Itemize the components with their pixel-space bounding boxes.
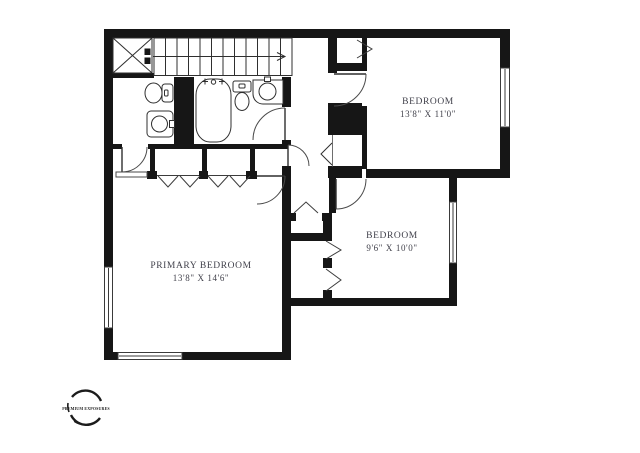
window-primary-south — [118, 353, 182, 360]
bedroom2-name: BEDROOM — [366, 231, 418, 241]
wall-linen-top-left — [288, 213, 296, 221]
room-label-primary-bedroom: PRIMARY BEDROOM 13'8" X 14'6" — [150, 261, 251, 283]
bedroom2-closet-chevron-2 — [326, 269, 341, 291]
wall-col-left-upper — [328, 38, 337, 73]
wall-post-1 — [147, 171, 157, 179]
window-bedroom2-east — [450, 202, 457, 263]
toilet-fixture — [145, 83, 173, 103]
door-water-closet — [122, 147, 147, 172]
door-bedroom1 — [334, 74, 366, 106]
door-bathroom — [253, 108, 285, 140]
floor-plan-drawing: BEDROOM 13'8" X 11'0" BEDROOM 9'6" X 10'… — [0, 0, 640, 453]
wall-top — [104, 29, 510, 38]
wall-bedroom1-bottom — [366, 169, 510, 178]
stairs-direction-arrow — [153, 53, 285, 61]
wall-bedroom2-bottom — [283, 298, 457, 306]
wall-col-right-b — [362, 106, 367, 169]
bifold-chevron-3 — [208, 176, 228, 187]
cased-opening-threshold — [116, 172, 147, 177]
primary-bedroom-name: PRIMARY BEDROOM — [150, 261, 251, 271]
bifold-chevron-2 — [180, 176, 200, 187]
wall-bath-south — [148, 144, 288, 149]
linen-closet-chevron — [294, 202, 318, 213]
window-primary-west — [105, 267, 113, 328]
wall-bath-south-west — [113, 144, 122, 149]
wall-closet-right-c — [323, 290, 332, 306]
door-hall-closet-flap — [321, 135, 333, 167]
door-bedroom2 — [336, 179, 366, 209]
room-label-bedroom2: BEDROOM 9'6" X 10'0" — [366, 231, 418, 253]
wall-closet-right-a — [323, 213, 332, 241]
bathtub-fixture — [196, 79, 231, 143]
bedroom2-dimensions: 9'6" X 10'0" — [366, 243, 417, 253]
wall-post-2 — [199, 171, 208, 179]
door-hall — [288, 145, 309, 166]
door-primary-bedroom — [257, 176, 285, 204]
toilet-fixture-2 — [233, 81, 251, 111]
x-box-closet — [113, 38, 152, 73]
vanity-sink-fixture — [253, 77, 283, 104]
wall-post-3 — [246, 171, 257, 179]
wall-bath-chase — [174, 77, 194, 144]
logo-brand-text: PREMIUM EXPOSURES — [62, 406, 110, 411]
wall-col-chase — [328, 103, 362, 135]
watermark-logo: PREMIUM EXPOSURES — [62, 391, 110, 425]
wall-xbox-bottom — [104, 73, 154, 78]
wall-br1-closet-bottom — [337, 63, 363, 71]
wall-bedroom2-west — [329, 178, 336, 213]
bedroom1-name: BEDROOM — [402, 97, 454, 107]
primary-bedroom-dimensions: 13'8" X 14'6" — [173, 273, 229, 283]
window-bedroom1-east — [501, 68, 510, 127]
bedroom2-closet-chevron-1 — [326, 241, 341, 259]
bifold-chevron-1 — [158, 176, 178, 187]
bedroom1-dimensions: 13'8" X 11'0" — [400, 109, 456, 119]
walls — [104, 29, 510, 360]
room-label-bedroom1: BEDROOM 13'8" X 11'0" — [400, 97, 456, 119]
stair-rail-glyph — [145, 49, 151, 65]
wall-hall-west-c — [282, 166, 291, 360]
stairs — [145, 38, 293, 76]
wall-col-bottom — [328, 166, 362, 178]
floor-plan-page: BEDROOM 13'8" X 11'0" BEDROOM 9'6" X 10'… — [0, 0, 640, 453]
bath-fixtures — [145, 77, 283, 142]
wall-closet-right-b — [323, 258, 332, 268]
corner-sink-fixture — [147, 111, 175, 137]
